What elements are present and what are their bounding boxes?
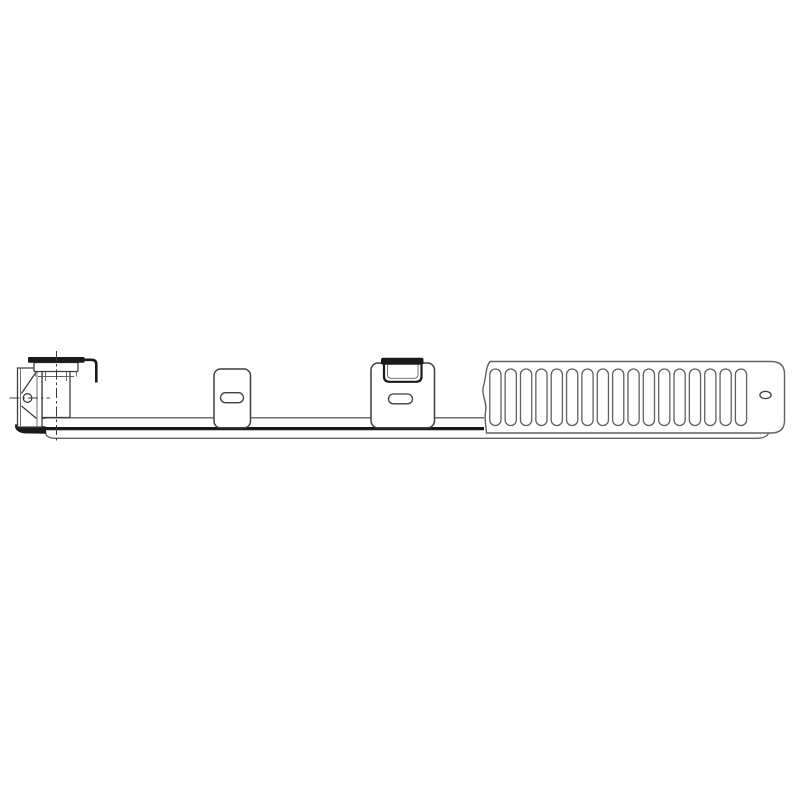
grille-slot [567, 369, 578, 426]
ventilation-grille-panel [483, 362, 785, 434]
grille-slot [735, 369, 746, 426]
grille-slot [705, 369, 716, 426]
fixing-clip-slot [221, 393, 244, 403]
fixing-clip [214, 369, 251, 428]
grille-slot [613, 369, 624, 426]
grille-slot [582, 369, 593, 426]
grille-slot [628, 369, 639, 426]
hook-clip [371, 358, 435, 428]
grille-slot [536, 369, 547, 426]
grille-slots [490, 369, 747, 426]
drawing-canvas [0, 0, 800, 800]
technical-drawing [0, 0, 800, 800]
grille-slot [490, 369, 501, 426]
hook-clip-cap-bar [381, 358, 424, 365]
grille-slot [597, 369, 608, 426]
bracket-hook [84, 360, 96, 383]
grille-slot [521, 369, 532, 426]
grille-slot [643, 369, 654, 426]
fixing-hole [760, 391, 771, 398]
grille-slot [674, 369, 685, 426]
grille-slot [551, 369, 562, 426]
grille-slot [659, 369, 670, 426]
hook-clip-slot [389, 394, 413, 404]
grille-slot [720, 369, 731, 426]
grille-slot [505, 369, 516, 426]
grille-slot [689, 369, 700, 426]
